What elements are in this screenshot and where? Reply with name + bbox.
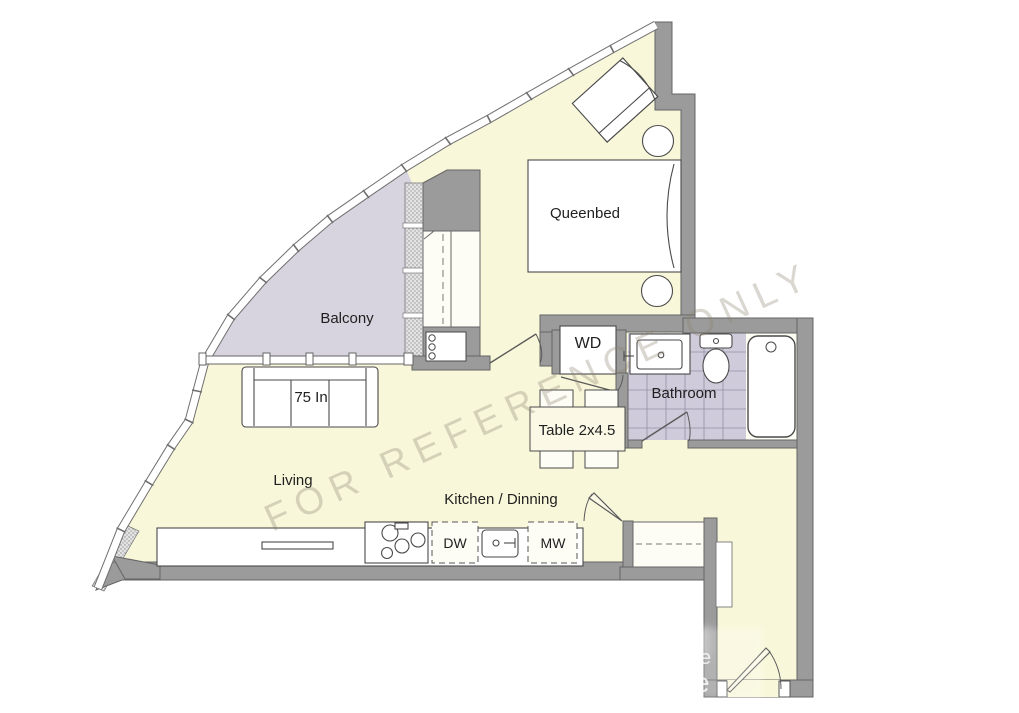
corridor-panel (716, 542, 732, 607)
microwave: MW (528, 522, 577, 563)
stove (365, 522, 428, 563)
table-label: Table 2x4.5 (539, 422, 616, 439)
bathroom-label: Bathroom (651, 385, 716, 402)
dw-label: DW (443, 535, 467, 551)
wall-bath-bottom (688, 440, 797, 448)
wall-strip-upper-block (423, 170, 480, 231)
wall-right-outer (797, 318, 813, 697)
wall-closet-bottom (620, 567, 717, 580)
watermark-e-2: e (694, 667, 710, 698)
queenbed-label: Queenbed (550, 205, 620, 222)
balcony-floor (205, 169, 412, 360)
utility-appliance (426, 332, 466, 361)
kitchen-sink (482, 530, 518, 557)
floor-plan-canvas: WD (0, 0, 1019, 713)
kitchen-label: Kitchen / Dinning (444, 491, 557, 508)
entry-closet (633, 522, 704, 567)
watermark-e-1: e (700, 647, 711, 669)
logo-watermark: e e (330, 626, 762, 698)
bedroom-closet (423, 231, 480, 327)
drawer-handle (262, 542, 333, 549)
sofa-label: 75 In (294, 389, 327, 406)
mw-label: MW (541, 535, 567, 551)
wall-bath-bottom-stub (628, 440, 642, 448)
bathtub (748, 336, 795, 437)
floor-plan-svg: WD (0, 0, 1019, 713)
nightstand-top (643, 126, 674, 157)
nightstand-bottom (642, 276, 673, 307)
balcony-label: Balcony (320, 310, 374, 327)
dishwasher: DW (432, 522, 478, 563)
